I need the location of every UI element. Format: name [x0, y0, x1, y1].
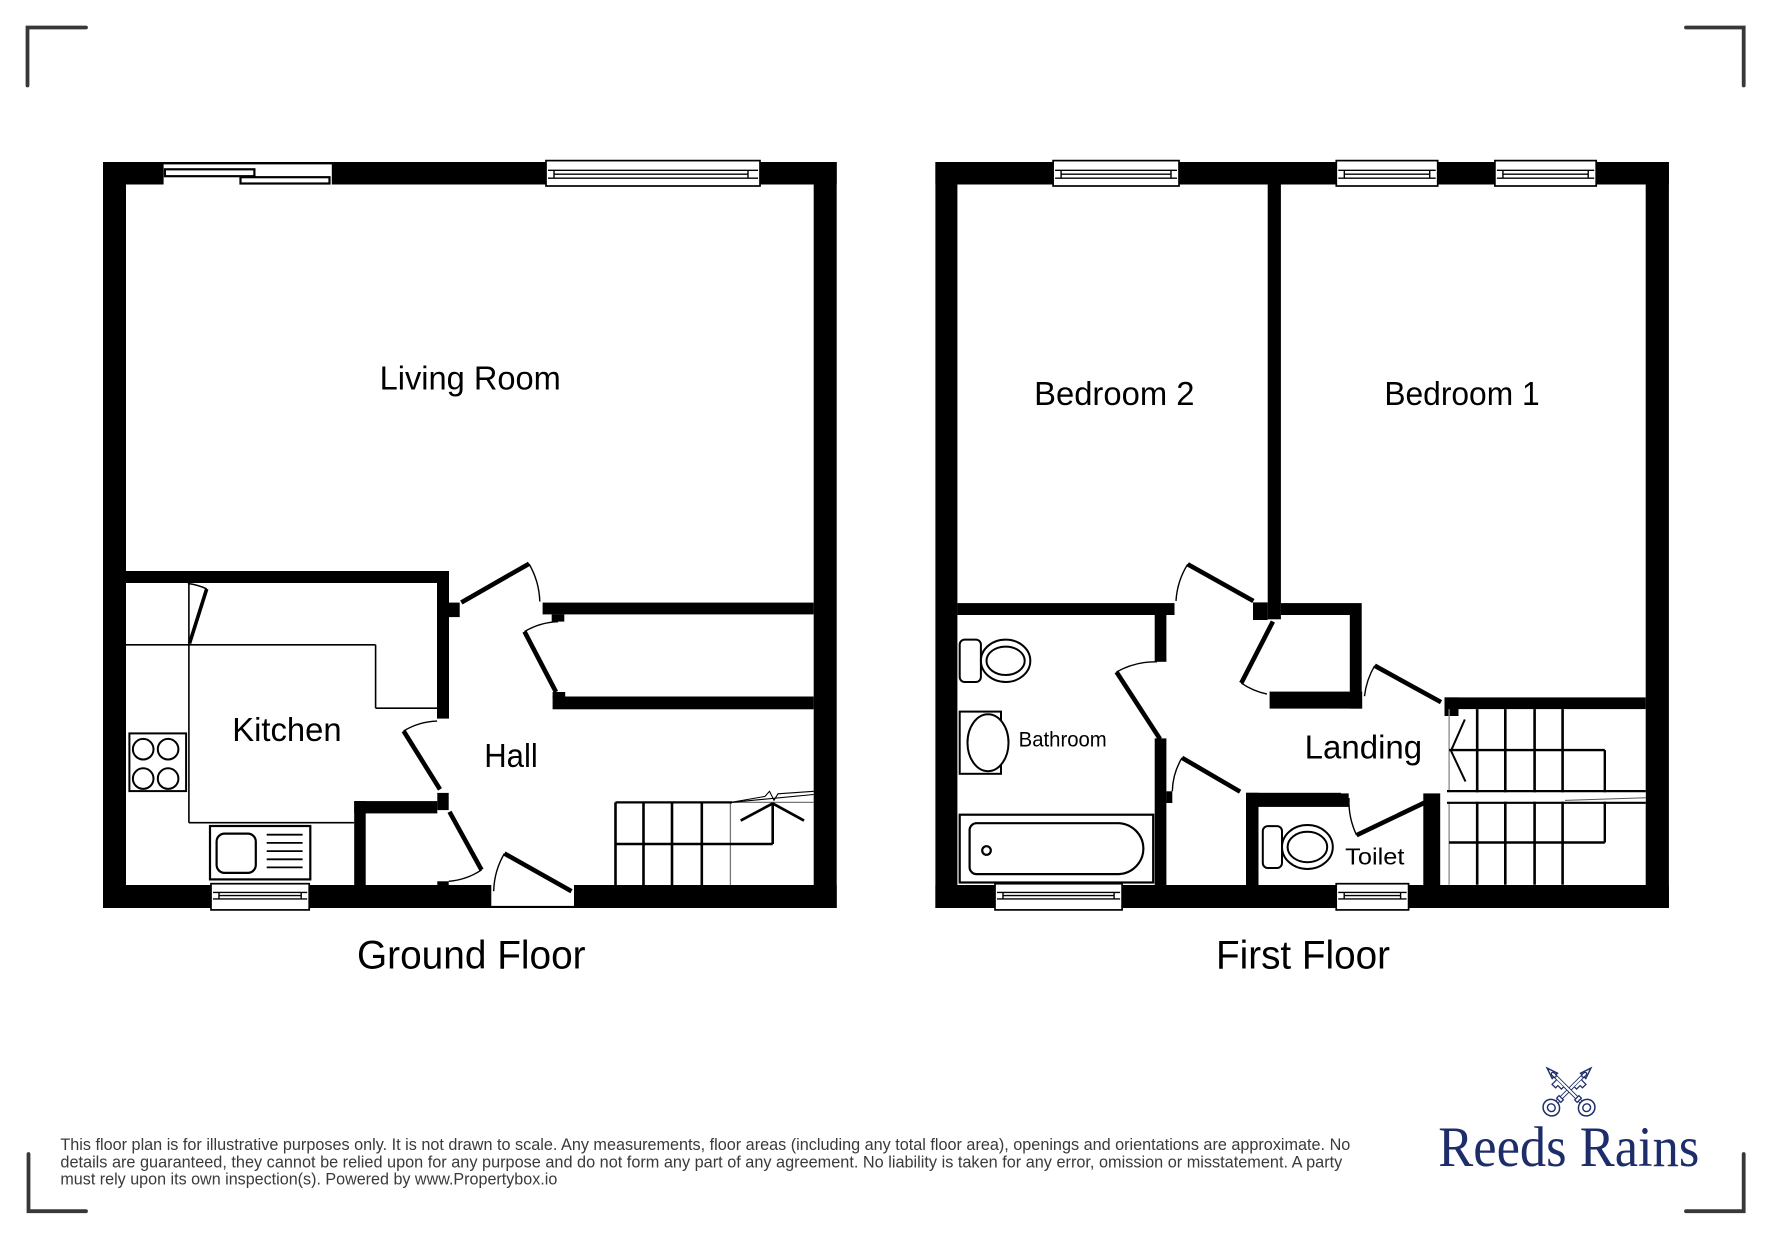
svg-text:Landing: Landing [1305, 728, 1423, 765]
svg-text:Toilet: Toilet [1345, 844, 1405, 870]
svg-text:Bedroom 1: Bedroom 1 [1384, 375, 1539, 412]
svg-text:Ground Floor: Ground Floor [357, 933, 586, 977]
svg-text:Reeds Rains: Reeds Rains [1438, 1116, 1699, 1179]
svg-text:Kitchen: Kitchen [232, 711, 341, 748]
svg-text:Living Room: Living Room [380, 359, 561, 396]
svg-text:must rely upon its own inspect: must rely upon its own inspection(s). Po… [60, 1169, 557, 1188]
svg-text:Bedroom 2: Bedroom 2 [1034, 375, 1194, 412]
svg-text:Hall: Hall [484, 737, 538, 774]
svg-text:Bathroom: Bathroom [1019, 728, 1107, 752]
svg-text:First Floor: First Floor [1216, 934, 1390, 978]
